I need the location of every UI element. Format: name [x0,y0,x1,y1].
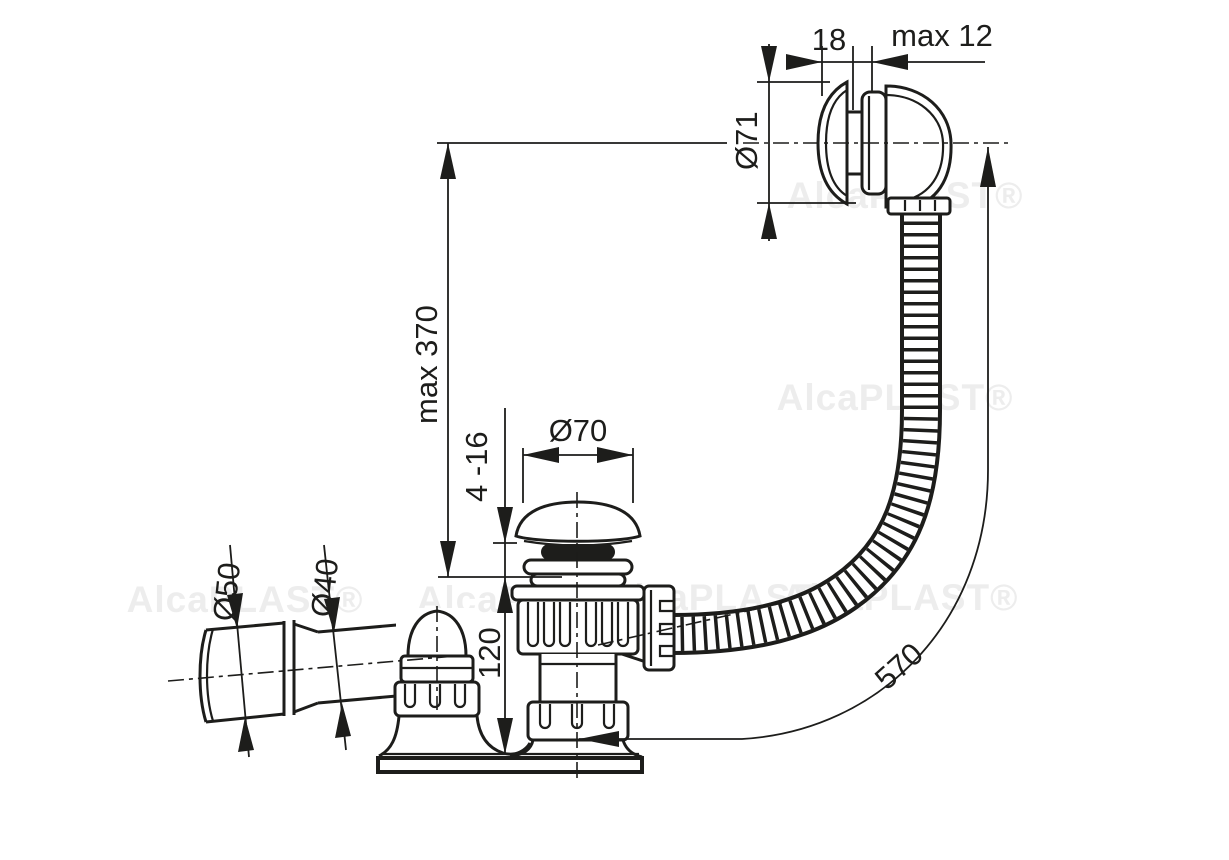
label-bath-bottom-thickness: 4 -16 [459,431,494,502]
label-hose-length: 570 [868,636,930,697]
technical-drawing-canvas: AlcaPLAST® AlcaPLAST® AlcaPLAST® AlcaPLA… [0,0,1229,860]
top-collar-plate [512,586,644,600]
corrugated-overflow-hose [672,210,921,634]
cap-disc-2 [531,574,625,586]
pipe-bead [284,620,294,716]
click-clack-cap [516,502,640,541]
label-outlet-diameter-50: Ø50 [206,561,247,623]
label-panel-max-thickness: max 12 [891,18,993,53]
overflow-assembly [818,82,951,214]
base-flange [378,758,642,772]
bath-waste-overflow-drawing: AlcaPLAST® AlcaPLAST® AlcaPLAST® AlcaPLA… [0,0,1229,860]
cap-disc-1 [524,560,632,574]
label-overflow-cap-offset: 18 [812,22,846,57]
watermark-text: AlcaPLAST® [777,377,1014,418]
label-overflow-hose-height: max 370 [409,305,444,424]
label-overflow-diameter: Ø71 [729,111,764,170]
label-waste-body-height: 120 [472,627,507,679]
label-waste-cap-diameter: Ø70 [549,413,608,448]
label-outlet-diameter-40: Ø40 [304,557,345,619]
dimension-d70 [523,447,633,503]
cap-gasket [541,544,615,560]
